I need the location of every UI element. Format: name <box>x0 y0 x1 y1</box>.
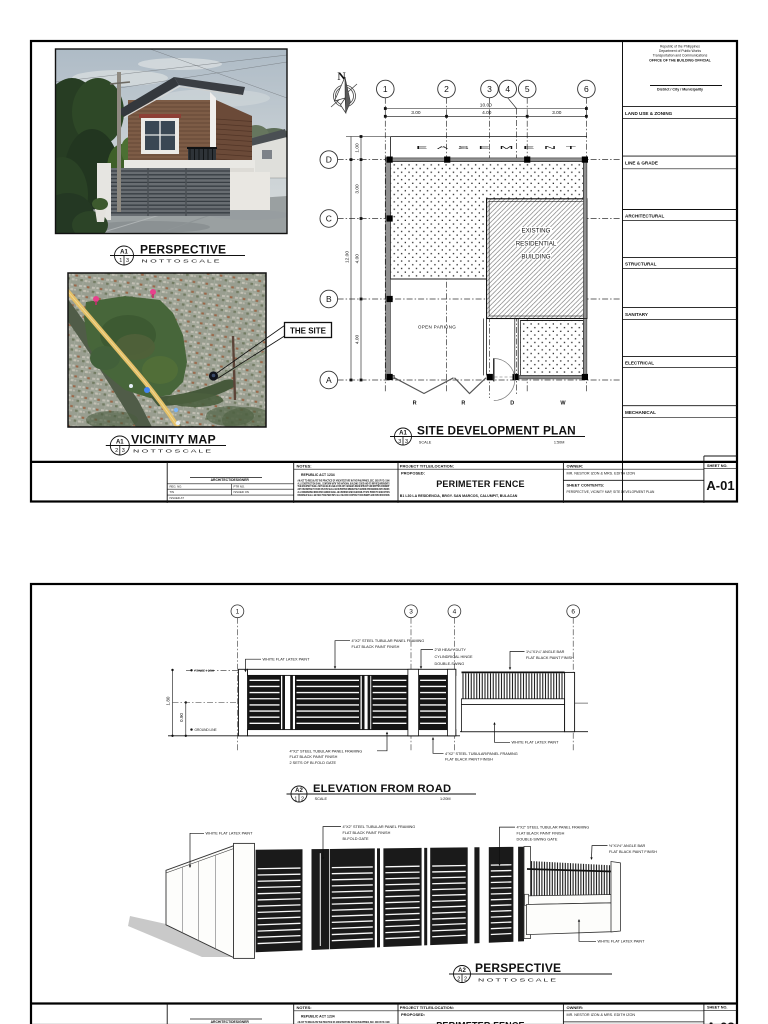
svg-text:A1: A1 <box>116 440 124 446</box>
svg-text:STRUCTURAL: STRUCTURAL <box>625 262 657 267</box>
svg-text:2: 2 <box>444 84 449 94</box>
svg-text:OWNER:: OWNER: <box>567 464 584 469</box>
svg-text:WHITE FLAT LATEX PAINT: WHITE FLAT LATEX PAINT <box>598 940 646 944</box>
svg-text:N O T T O S C A L E: N O T T O S C A L E <box>142 259 220 264</box>
svg-text:3: 3 <box>126 258 129 264</box>
svg-text:FLAT BLACK PAINT FINISH: FLAT BLACK PAINT FINISH <box>445 758 493 762</box>
svg-text:EXISTING: EXISTING <box>522 228 551 235</box>
svg-text:4: 4 <box>453 609 457 616</box>
svg-text:12.00: 12.00 <box>345 251 351 263</box>
svg-text:WHITE FLAT LATEX PAINT: WHITE FLAT LATEX PAINT <box>206 832 254 836</box>
svg-text:TIN: TIN <box>170 490 175 494</box>
svg-text:A: A <box>326 375 332 385</box>
svg-text:A-02: A-02 <box>706 1020 734 1024</box>
svg-text:E A S E M E N T: E A S E M E N T <box>416 145 577 150</box>
svg-text:B: B <box>326 294 332 304</box>
svg-text:1.80: 1.80 <box>165 696 170 705</box>
svg-text:0.90: 0.90 <box>179 713 184 722</box>
svg-text:C: C <box>326 214 332 224</box>
svg-text:4"X2" STEEL TUBULAR PANEL FRAM: 4"X2" STEEL TUBULAR PANEL FRAMING <box>352 639 425 643</box>
svg-text:R: R <box>413 401 417 407</box>
svg-text:SHEET CONTENTS:: SHEET CONTENTS: <box>567 483 605 488</box>
svg-text:Republic of the Philippines: Republic of the Philippines <box>660 45 700 49</box>
svg-text:DOUBLE-SWING: DOUBLE-SWING <box>435 662 465 666</box>
svg-text:PROPOSED:: PROPOSED: <box>401 1012 425 1017</box>
svg-text:SCALE: SCALE <box>419 440 432 444</box>
svg-text:4"X2" STEEL TUBULAR PANEL FRAM: 4"X2" STEEL TUBULAR PANEL FRAMING <box>343 825 416 829</box>
svg-text:PERSPECTIVE, VICINITY MAP, SIT: PERSPECTIVE, VICINITY MAP, SITE DEVELOPM… <box>567 490 656 494</box>
svg-text:ISSUED ON: ISSUED ON <box>234 490 249 494</box>
svg-text:ARCHITECTURAL: ARCHITECTURAL <box>625 214 664 219</box>
svg-text:PERIMETER FENCE: PERIMETER FENCE <box>436 479 525 489</box>
svg-text:4"X2" STEEL TUBULAR/PANEL FRAM: 4"X2" STEEL TUBULAR/PANEL FRAMING <box>445 752 518 756</box>
svg-text:4.00: 4.00 <box>482 110 492 116</box>
svg-text:BUILDING: BUILDING <box>521 254 550 261</box>
svg-text:2: 2 <box>115 448 118 454</box>
svg-text:10.00: 10.00 <box>480 102 492 108</box>
svg-text:4"X2" STEEL TUBULAR PANEL FRAM: 4"X2" STEEL TUBULAR PANEL FRAMING <box>517 826 590 830</box>
svg-text:6: 6 <box>571 609 575 616</box>
svg-text:B1 L30 LA RESIDENCIA, BRGY. SA: B1 L30 LA RESIDENCIA, BRGY. SAN MARCOS, … <box>400 494 518 498</box>
svg-text:ISSUED AT: ISSUED AT <box>170 496 185 500</box>
svg-text:R: R <box>461 401 465 407</box>
svg-text:REPUBLIC ACT 1234: REPUBLIC ACT 1234 <box>301 473 335 477</box>
svg-text:GROUND LINE: GROUND LINE <box>195 728 217 732</box>
svg-text:3.00: 3.00 <box>552 110 562 116</box>
svg-text:District / City / Municipality: District / City / Municipality <box>657 88 703 92</box>
svg-text:A1: A1 <box>120 250 128 256</box>
svg-text:6: 6 <box>584 84 589 94</box>
svg-text:4: 4 <box>505 84 510 94</box>
svg-text:1: 1 <box>294 797 297 803</box>
svg-text:MR. NESTOR IZON & MRS. EDITH I: MR. NESTOR IZON & MRS. EDITH IZON <box>567 471 636 475</box>
svg-text:ELECTRICAL: ELECTRICAL <box>625 361 654 366</box>
svg-text:3: 3 <box>122 448 125 454</box>
svg-text:DRAWINGS SHALL BE READ TOGETHE: DRAWINGS SHALL BE READ TOGETHER WITH ALL… <box>298 493 390 497</box>
svg-text:2"Ø HEAVY DUTY: 2"Ø HEAVY DUTY <box>435 648 467 652</box>
svg-text:PROJECT TITLE/LOCATION:: PROJECT TITLE/LOCATION: <box>400 1005 454 1010</box>
svg-text:1:50M: 1:50M <box>554 440 565 444</box>
svg-text:LINE & GRADE: LINE & GRADE <box>625 160 658 165</box>
svg-text:3: 3 <box>487 84 492 94</box>
svg-text:PERSPECTIVE: PERSPECTIVE <box>475 961 561 975</box>
svg-text:OPEN PARKING: OPEN PARKING <box>418 325 456 330</box>
svg-text:BI-FOLD GATE: BI-FOLD GATE <box>343 837 370 841</box>
svg-text:FLAT BLACK PAINT FINISH: FLAT BLACK PAINT FINISH <box>526 656 574 660</box>
svg-text:1: 1 <box>119 258 122 264</box>
svg-text:1¼"X1¼" ANGLE BAR: 1¼"X1¼" ANGLE BAR <box>526 650 565 654</box>
svg-text:3: 3 <box>409 609 413 616</box>
svg-text:FLAT BLACK PAINT FINISH: FLAT BLACK PAINT FINISH <box>352 645 400 649</box>
svg-text:3.00: 3.00 <box>355 184 361 194</box>
svg-text:N O T T O S C A L E: N O T T O S C A L E <box>478 978 556 983</box>
svg-text:3: 3 <box>398 439 401 445</box>
svg-text:D: D <box>326 155 332 165</box>
svg-text:ARCHITECT/DESIGNER: ARCHITECT/DESIGNER <box>211 478 250 482</box>
svg-text:A-01: A-01 <box>706 478 734 493</box>
svg-text:1: 1 <box>383 84 388 94</box>
svg-text:WHITE FLAT LATEX PAINT: WHITE FLAT LATEX PAINT <box>263 658 311 662</box>
svg-text:2: 2 <box>457 977 460 983</box>
svg-text:1:20M: 1:20M <box>440 797 451 801</box>
svg-text:SANITARY: SANITARY <box>625 312 648 317</box>
svg-text:SHEET NO.: SHEET NO. <box>707 1005 727 1009</box>
svg-text:SITE DEVELOPMENT PLAN: SITE DEVELOPMENT PLAN <box>417 423 576 437</box>
svg-text:2: 2 <box>301 797 304 803</box>
svg-text:PROPOSED:: PROPOSED: <box>401 471 425 476</box>
svg-text:FLAT BLACK PAINT FINISH: FLAT BLACK PAINT FINISH <box>609 850 657 854</box>
svg-text:REG. NO.: REG. NO. <box>170 485 183 489</box>
svg-text:4.00: 4.00 <box>355 335 361 345</box>
svg-text:PROJECT TITLE/LOCATION:: PROJECT TITLE/LOCATION: <box>400 464 454 469</box>
svg-text:A2: A2 <box>458 968 466 974</box>
svg-text:MR. NESTOR IZON & MRS. EDITH I: MR. NESTOR IZON & MRS. EDITH IZON <box>567 1013 636 1017</box>
svg-text:SHEET NO.: SHEET NO. <box>707 464 727 468</box>
svg-text:1: 1 <box>236 609 240 616</box>
svg-text:CYLINDRICAL HINGE: CYLINDRICAL HINGE <box>435 655 474 659</box>
svg-text:Transportation and Communicati: Transportation and Communications <box>653 54 708 58</box>
svg-text:1.00: 1.00 <box>355 143 361 153</box>
svg-text:3: 3 <box>405 439 408 445</box>
svg-text:5: 5 <box>525 84 530 94</box>
svg-text:PTR NO.: PTR NO. <box>234 485 246 489</box>
svg-text:ARCHITECT/DESIGNER: ARCHITECT/DESIGNER <box>211 1020 250 1024</box>
svg-text:NOTES:: NOTES: <box>297 1005 312 1010</box>
svg-text:RESIDENTIAL: RESIDENTIAL <box>516 241 557 248</box>
svg-text:3.00: 3.00 <box>411 110 421 116</box>
svg-text:WHITE FLAT LATEX PAINT: WHITE FLAT LATEX PAINT <box>512 741 560 745</box>
svg-text:Department of Public Works: Department of Public Works <box>659 49 701 53</box>
svg-text:NOTES:: NOTES: <box>297 464 312 469</box>
svg-text:A2: A2 <box>295 788 303 794</box>
svg-text:A1: A1 <box>399 431 407 437</box>
svg-text:FLAT BLACK PAINT FINISH: FLAT BLACK PAINT FINISH <box>290 755 338 759</box>
svg-text:SCALE: SCALE <box>315 797 328 801</box>
svg-text:FLAT BLACK PAINT FINISH: FLAT BLACK PAINT FINISH <box>343 831 391 835</box>
svg-text:PERSPECTIVE: PERSPECTIVE <box>140 242 226 256</box>
svg-text:2 SETS OF BI-FOLD GATE: 2 SETS OF BI-FOLD GATE <box>290 761 337 765</box>
svg-text:VICINITY MAP: VICINITY MAP <box>131 432 216 446</box>
svg-text:½"X1½" ANGLE BAR: ½"X1½" ANGLE BAR <box>609 844 646 848</box>
svg-text:W: W <box>560 401 566 407</box>
svg-text:MECHANICAL: MECHANICAL <box>625 410 656 415</box>
svg-text:LAND USE & ZONING: LAND USE & ZONING <box>625 111 673 116</box>
svg-text:OFFICE OF THE BUILDING OFFICIA: OFFICE OF THE BUILDING OFFICIAL <box>649 59 711 63</box>
svg-text:FENCE HIGH: FENCE HIGH <box>195 669 215 673</box>
svg-text:N O T T O S C A L E: N O T T O S C A L E <box>133 449 211 454</box>
svg-text:FLAT BLACK PAINT FINISH: FLAT BLACK PAINT FINISH <box>517 831 565 835</box>
svg-text:OWNER:: OWNER: <box>567 1005 584 1010</box>
svg-text:REPUBLIC ACT 1234: REPUBLIC ACT 1234 <box>301 1015 335 1019</box>
svg-text:ELEVATION FROM ROAD: ELEVATION FROM ROAD <box>313 783 451 795</box>
svg-text:2: 2 <box>464 977 467 983</box>
svg-text:D: D <box>510 401 514 407</box>
svg-text:THE SITE: THE SITE <box>290 327 327 336</box>
svg-text:4"X2" STEEL TUBULAR PANEL FRAM: 4"X2" STEEL TUBULAR PANEL FRAMING <box>290 749 363 753</box>
svg-text:DOUBLE-SWING GATE: DOUBLE-SWING GATE <box>517 837 558 841</box>
svg-text:4.00: 4.00 <box>355 254 361 264</box>
